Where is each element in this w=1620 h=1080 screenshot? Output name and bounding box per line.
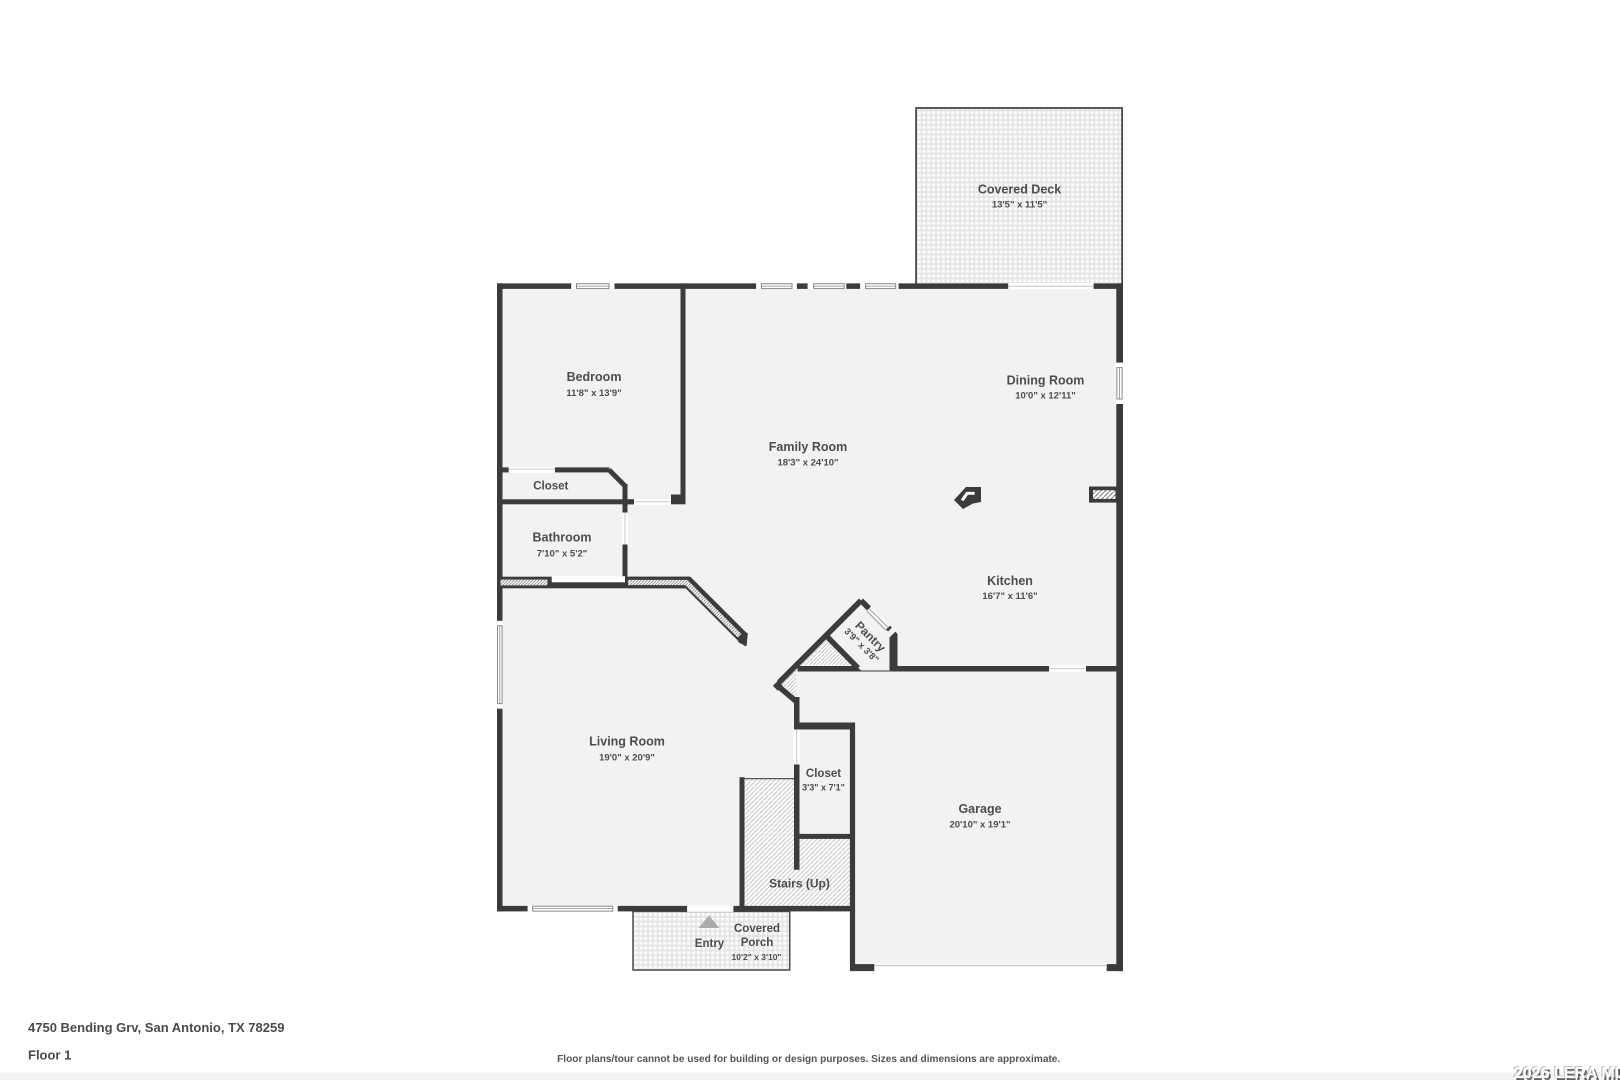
svg-text:4750 Bending Grv, San Antonio,: 4750 Bending Grv, San Antonio, TX 78259 bbox=[28, 1020, 284, 1035]
svg-text:11'8" x 13'9": 11'8" x 13'9" bbox=[566, 388, 621, 399]
svg-text:Kitchen: Kitchen bbox=[987, 574, 1033, 588]
svg-text:20'10" x 19'1": 20'10" x 19'1" bbox=[949, 820, 1010, 831]
svg-text:Dining Room: Dining Room bbox=[1007, 374, 1085, 388]
svg-text:13'5" x 11'5": 13'5" x 11'5" bbox=[992, 200, 1047, 211]
svg-text:Entry: Entry bbox=[695, 938, 725, 950]
svg-text:Family Room: Family Room bbox=[769, 440, 848, 454]
svg-text:Covered: Covered bbox=[734, 923, 780, 935]
svg-text:Covered Deck: Covered Deck bbox=[978, 183, 1061, 197]
svg-text:Living Room: Living Room bbox=[589, 735, 665, 749]
svg-text:7'10" x 5'2": 7'10" x 5'2" bbox=[537, 549, 588, 560]
svg-text:Bedroom: Bedroom bbox=[567, 370, 622, 384]
svg-text:Bathroom: Bathroom bbox=[532, 531, 591, 545]
svg-text:Stairs (Up): Stairs (Up) bbox=[769, 877, 830, 891]
svg-text:2026 LERA MLS: 2026 LERA MLS bbox=[1514, 1065, 1620, 1080]
svg-text:Closet: Closet bbox=[533, 481, 568, 493]
svg-text:16'7" x 11'6": 16'7" x 11'6" bbox=[982, 591, 1037, 602]
svg-text:19'0" x 20'9": 19'0" x 20'9" bbox=[599, 753, 655, 764]
svg-text:10'0" x 12'11": 10'0" x 12'11" bbox=[1015, 391, 1076, 402]
svg-text:Closet: Closet bbox=[806, 768, 841, 780]
svg-text:Garage: Garage bbox=[958, 802, 1001, 816]
svg-text:Porch: Porch bbox=[741, 937, 774, 949]
svg-text:18'3" x 24'10": 18'3" x 24'10" bbox=[777, 458, 838, 469]
svg-text:10'2" x 3'10": 10'2" x 3'10" bbox=[732, 952, 782, 962]
svg-text:Floor plans/tour cannot be use: Floor plans/tour cannot be used for buil… bbox=[557, 1054, 1060, 1065]
svg-text:3'3" x 7'1": 3'3" x 7'1" bbox=[802, 783, 845, 793]
svg-text:Floor 1: Floor 1 bbox=[28, 1048, 71, 1063]
